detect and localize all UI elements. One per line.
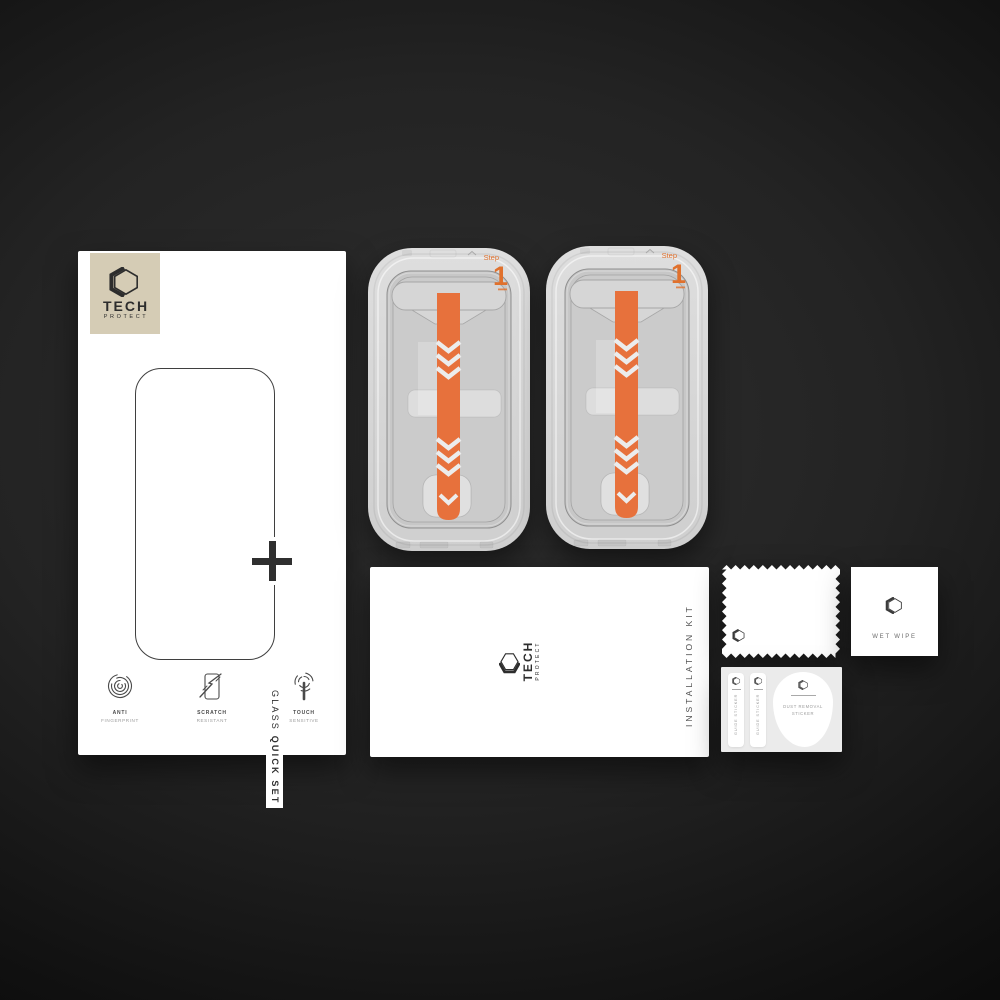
dust-removal-sticker: DUST REMOVAL STICKER <box>773 672 833 747</box>
brand-name: TECH <box>522 641 534 682</box>
feature-label-line1: SCRATCH <box>197 709 227 718</box>
hexagon-logo-icon <box>732 677 741 685</box>
wet-wipe-packet: WET WIPE <box>851 567 938 656</box>
dust-sticker-label-line2: STICKER <box>783 711 823 718</box>
feature-label-line2: RESISTANT <box>197 718 228 724</box>
guide-sticker-strip: GUIDE STICKER <box>750 673 766 747</box>
feature-touch-sensitive: TOUCH SENSITIVE <box>269 671 339 723</box>
feature-scratch-resistant: SCRATCH RESISTANT <box>177 671 247 723</box>
hexagon-logo-icon <box>732 629 746 642</box>
fingerprint-icon <box>105 671 135 703</box>
hexagon-logo-icon <box>885 597 904 614</box>
brand-logo-rotated: TECH PROTECT <box>499 641 541 684</box>
feature-label-line2: FINGERPRINT <box>101 718 139 724</box>
product-title-bold: QUICK SET <box>270 736 280 805</box>
guide-sticker-label: GUIDE STICKER <box>755 694 761 735</box>
installer-tray-2: Step 1 <box>546 246 708 549</box>
dust-sticker-label-line1: DUST REMOVAL <box>783 704 823 711</box>
installation-kit-envelope: TECH PROTECT <box>370 567 709 757</box>
feature-anti-fingerprint: ANTI FINGERPRINT <box>85 671 155 723</box>
touch-icon <box>289 671 319 703</box>
hexagon-logo-icon <box>754 677 763 685</box>
guide-sticker-label: GUIDE STICKER <box>733 694 739 735</box>
hexagon-logo-icon <box>798 680 809 690</box>
feature-label-line1: TOUCH <box>293 709 315 718</box>
product-photo: TECH PROTECT GLASS QUICK SET ANTI FINGER… <box>0 0 1000 1000</box>
microfiber-cloth-wrap <box>722 565 840 658</box>
hexagon-logo-icon <box>499 650 520 674</box>
sticker-card: GUIDE STICKER GUIDE STICKER DUST REMOVAL… <box>721 667 842 752</box>
brand-subname: PROTECT <box>104 315 148 321</box>
wet-wipe-label: WET WIPE <box>872 634 917 640</box>
feature-label-line2: SENSITIVE <box>289 718 318 724</box>
hexagon-logo-icon <box>108 267 142 297</box>
step-number: 1 <box>493 261 508 291</box>
feature-label-line1: ANTI <box>113 709 128 718</box>
microfiber-cloth <box>722 565 840 658</box>
step-number: 1 <box>671 259 686 289</box>
brand-name: TECH <box>103 299 149 313</box>
retail-box: TECH PROTECT GLASS QUICK SET ANTI FINGER… <box>78 251 346 755</box>
plus-icon <box>250 537 294 585</box>
installation-kit-label: INSTALLATION KIT <box>682 604 696 727</box>
guide-sticker-strip: GUIDE STICKER <box>728 673 744 747</box>
brand-subname: PROTECT <box>536 641 541 680</box>
pull-tab-strip <box>437 293 460 520</box>
phone-outline <box>135 368 275 660</box>
brand-logo: TECH PROTECT <box>90 253 160 334</box>
pull-tab-strip <box>615 291 638 518</box>
scratch-icon <box>197 671 227 703</box>
installer-tray-1: Step 1 <box>368 248 530 551</box>
feature-list: ANTI FINGERPRINT SCRATCH RESISTANT TOU <box>78 671 346 723</box>
